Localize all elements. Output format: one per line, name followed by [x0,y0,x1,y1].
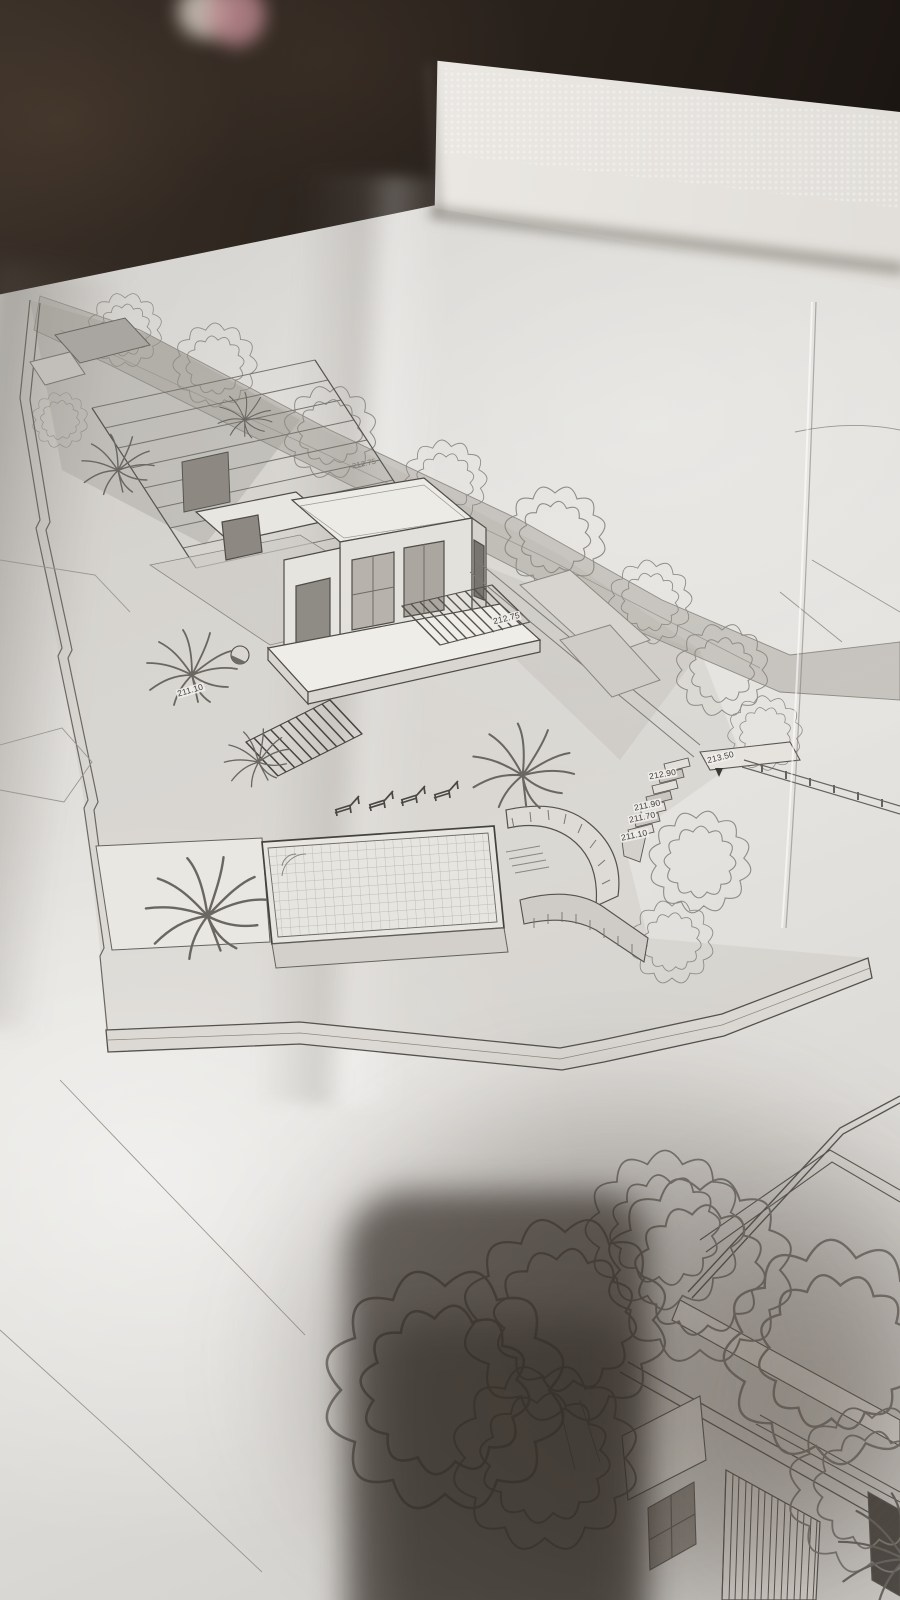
elevation-label: 212.75 [350,456,377,470]
elevation-label: 211.10 [619,828,649,843]
elevation-label: 211.10 [175,682,205,699]
elevation-label: 213.50 [705,750,736,766]
elevation-label: 211.70 [627,810,657,825]
elevation-label: 212.75 [491,611,522,627]
phone-shadow-core-inner [380,1320,630,1600]
elevation-label: 212.90 [647,768,677,782]
photo-scene: 213.50212.90211.90211.70211.10212.75212.… [0,0,900,1600]
